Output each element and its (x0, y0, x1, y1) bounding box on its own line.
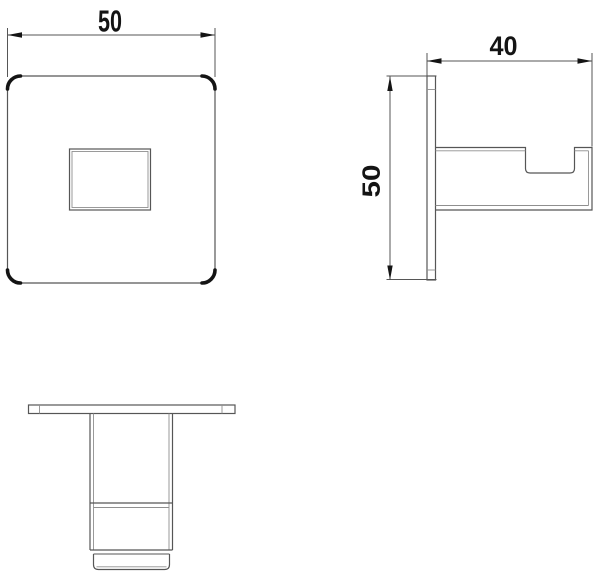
arrowhead-left-icon (8, 32, 23, 37)
front-width-dimension: 50 (8, 4, 216, 78)
faceplate-outline (8, 76, 216, 283)
arrowhead-top-icon (387, 77, 392, 92)
corner-arc-top-right (202, 76, 215, 89)
hook-profile-outline (436, 148, 593, 211)
arrowhead-right-icon (578, 58, 593, 63)
arrowhead-right-icon (201, 32, 216, 37)
side-depth-dimension: 40 (427, 31, 592, 147)
bottom-view (29, 405, 236, 570)
arrowhead-bottom-icon (387, 266, 392, 281)
technical-drawing-canvas: 50 40 (0, 0, 600, 572)
hook-arm-section-outline (70, 149, 151, 210)
plate-strip-edge (29, 405, 236, 414)
front-view (8, 76, 216, 283)
dimension-text-width: 50 (98, 4, 122, 39)
corner-arc-bottom-left (8, 270, 21, 283)
drawing-sheet: 50 40 (0, 0, 600, 572)
dimension-text-height: 50 (358, 165, 386, 198)
corner-arc-bottom-right (202, 270, 215, 283)
hook-arm-section-inner-edge (72, 152, 148, 208)
wall-plate-edge (427, 76, 436, 280)
side-view (427, 76, 592, 280)
corner-arc-top-left (8, 76, 21, 89)
arrowhead-left-icon (427, 58, 442, 63)
dimension-text-depth: 40 (490, 31, 518, 61)
side-height-dimension: 50 (358, 76, 437, 280)
